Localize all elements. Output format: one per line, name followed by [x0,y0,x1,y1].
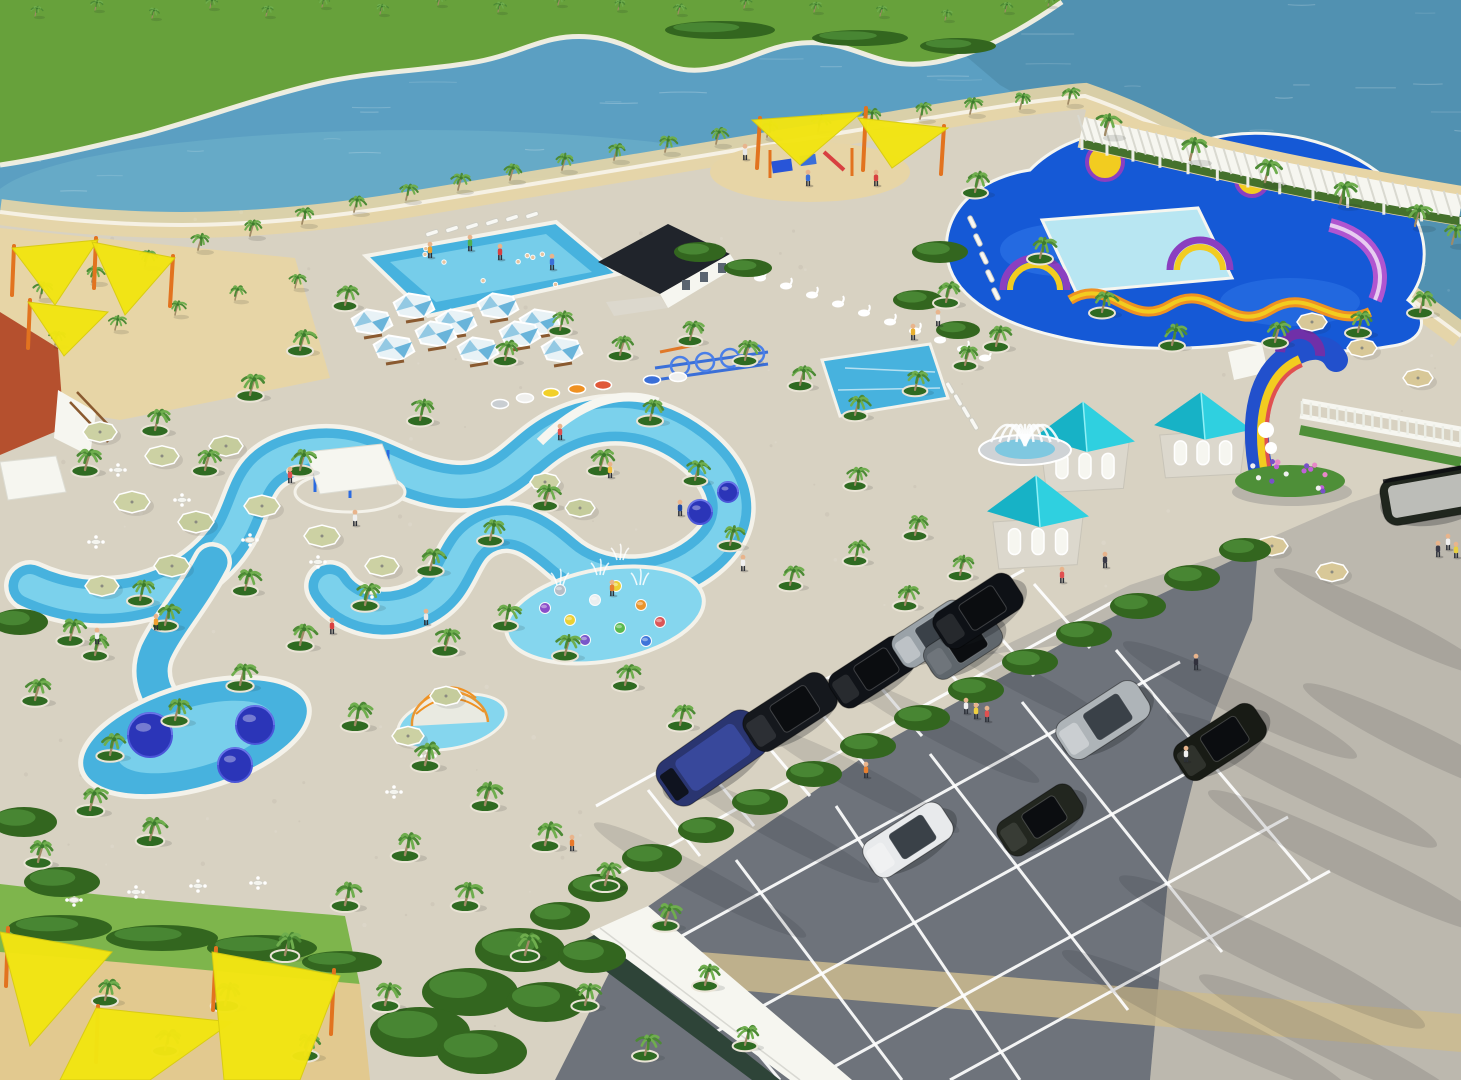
legs [1454,553,1456,558]
palm-crown [962,559,966,563]
chair [141,890,145,894]
head [743,144,748,149]
head [353,510,358,515]
palm-crown [977,175,981,179]
umbrella-pole [407,735,410,738]
west-canopy-roof [0,456,66,500]
speckle [110,845,114,849]
torso [1184,751,1188,758]
palm-crown [407,836,411,840]
umbrella-pole [99,431,102,434]
palm-crown [40,844,44,848]
umbrella-pole [445,695,448,698]
seat-top [642,638,648,642]
legs [468,246,470,251]
head [678,500,683,505]
palm-shadow [234,300,249,304]
float-dome [688,500,712,524]
hedge-light [916,243,950,255]
palm-crown [36,8,38,10]
dome-highlight [224,756,236,763]
speckle [1192,393,1194,395]
head [911,324,916,329]
head [1103,552,1108,557]
speckle [408,522,412,526]
chair [392,795,396,799]
palm-crown [347,886,351,890]
speckle [379,725,382,728]
palm-crown [1070,90,1073,93]
speckle [67,843,69,845]
palm-crown [802,369,806,373]
speckle [578,810,582,814]
hedge-light [1223,540,1254,553]
dome-highlight [136,723,151,732]
legs [471,246,473,251]
swimmer [531,255,535,259]
palm-crown [467,886,471,890]
palm-shadow [265,16,276,19]
torso [911,329,915,336]
head [498,244,503,249]
hedge [302,951,382,973]
head [974,703,979,708]
speckle [834,558,838,562]
hedge-light [114,927,181,941]
speckle [1401,410,1403,412]
head [985,706,990,711]
seat-top [556,587,562,591]
head [330,618,335,623]
swimmer [540,252,544,256]
ripple [1454,130,1461,131]
swimmer [553,282,557,286]
legs [431,253,433,258]
speckle [579,834,582,837]
palm-crown [619,2,621,4]
flower [1269,479,1274,484]
speckle [635,528,638,531]
head [1454,542,1459,547]
palm-shadow [1047,6,1058,9]
torso [743,149,747,156]
legs [1446,545,1448,550]
chair [65,898,69,902]
palm-crown [622,339,626,343]
hedge-light [790,763,824,777]
palm-shadow [294,288,309,292]
palm-crown [37,682,41,686]
speckle [476,769,478,771]
palm-crown [567,638,571,642]
palm-crown [871,111,874,114]
flower [1256,475,1261,480]
palm-crown [356,198,359,201]
hedge-light [819,31,877,40]
head [95,628,100,633]
umbrella-pole [225,445,228,448]
legs [610,591,612,596]
speckle [561,856,565,860]
legs [964,709,966,714]
legs [1187,757,1189,762]
palm-shadow [379,14,390,17]
palm-crown [562,315,566,319]
head [1436,541,1441,546]
hedge-light [939,322,965,332]
palm-crown [512,166,515,169]
legs [985,717,987,722]
table [69,897,79,902]
legs [611,473,613,478]
stepping-stone [543,389,560,398]
seat-top [566,617,572,621]
hedge-light [378,1011,438,1039]
umbrella-pole [101,585,104,588]
chair [203,884,207,888]
palm-crown [1277,325,1281,329]
chair [248,533,252,537]
palm-crown [116,318,119,321]
palm-shadow [557,5,568,8]
palm-crown [1107,117,1111,121]
speckle [1222,373,1226,377]
flower [1274,464,1279,469]
speckle [825,512,829,516]
hedge [674,242,726,262]
legs [743,155,745,160]
seat-top [581,637,587,641]
legs [570,846,572,851]
palm-shadow [1103,135,1126,142]
palm-crown [252,377,256,381]
palm-shadow [114,330,129,334]
speckle [239,210,243,214]
torso [424,614,428,621]
head [964,698,969,703]
palm-crown [1360,315,1364,319]
table [193,883,203,888]
chair [316,555,320,559]
palm-shadow [1413,226,1436,233]
hedge [622,844,682,872]
torso [498,249,502,256]
legs [608,473,610,478]
palm-crown [296,276,299,279]
chair [189,884,193,888]
legs [1197,665,1199,670]
hedge [894,705,950,731]
speckle [1104,585,1107,588]
palm-crown [447,632,451,636]
speckle [1447,289,1450,292]
chair [385,790,389,794]
hedge-light [678,244,709,255]
table [253,880,263,885]
speckle [792,230,795,233]
palm-crown [499,4,501,6]
splash-seat [565,615,576,626]
legs [356,521,358,526]
arched-window [1102,453,1114,478]
palm-shadow [944,20,955,23]
speckle [193,218,196,221]
legs [550,265,552,270]
palm-shadow [437,5,448,8]
speckle [61,460,65,464]
splash-seat [655,617,666,628]
palm-crown [857,399,861,403]
palm-crown [667,907,671,911]
palm-shadow [918,119,936,124]
chair [256,876,260,880]
speckle [519,386,522,389]
ripple [349,152,381,153]
palm-crown [1022,95,1025,98]
hedge [786,761,842,787]
torso [95,633,99,640]
palm-crown [747,344,751,348]
aerial-water-park-render [0,0,1461,1080]
torso [1454,547,1458,554]
chair [87,540,91,544]
torso [1103,557,1107,564]
legs [1060,578,1062,583]
speckle [212,630,216,634]
hedge-light [736,791,770,805]
palm-crown [507,608,511,612]
speckle [398,514,402,518]
umbrella-pole [1417,377,1420,380]
head [154,614,159,619]
splash-seat [636,600,647,611]
palm-crown [427,746,431,750]
hedge-light [1114,595,1148,609]
cloud-ornament [1258,422,1274,438]
stepping-stone [644,376,661,385]
legs [1194,665,1196,670]
palm-crown [1417,208,1421,212]
hedge [732,789,788,815]
palm-crown [607,866,611,870]
umbrella-pole [195,521,198,524]
ripple [1413,84,1443,85]
speckle [1166,509,1170,513]
legs [1184,757,1186,762]
hedge [437,1030,527,1074]
table [91,539,101,544]
torso [1194,659,1198,666]
palm-crown [881,8,883,10]
palm-crown [602,453,606,457]
legs [988,717,990,722]
scene-canvas [0,0,1461,1080]
flower [1320,488,1325,493]
palm-crown [792,569,796,573]
hedge [1002,649,1058,675]
umbrella-pole [381,565,384,568]
chair [180,493,184,497]
speckle [24,772,28,776]
hedge [948,677,1004,703]
hedge-light [898,707,932,721]
hedge [812,30,908,46]
legs [806,181,808,186]
chair [263,881,267,885]
palm-crown [1174,328,1178,332]
speckle [362,923,366,927]
swimmer [516,260,520,264]
palm-crown [381,6,383,8]
head [608,462,613,467]
speckle [774,441,776,443]
hedge-light [952,679,986,693]
chair [196,889,200,893]
speckle [272,799,277,804]
palm-crown [1422,295,1426,299]
legs [95,639,97,644]
palm-crown [857,470,861,474]
palm-shadow [677,14,688,17]
hedge-light [926,39,972,48]
clubhouse-window [700,272,708,282]
legs [1063,578,1065,583]
palm-shadow [663,152,681,157]
arched-window [1032,529,1044,555]
palm-crown [247,573,251,577]
palm-crown [707,968,711,972]
arched-window [1174,441,1186,465]
palm-crown [917,374,921,378]
speckle [494,1025,496,1027]
legs [157,625,159,630]
dome-highlight [722,487,729,491]
palm-crown [922,105,925,108]
palm-crown [1342,185,1346,189]
speckle [298,820,300,822]
palm-crown [972,100,975,103]
swimmer [424,246,428,250]
palm-shadow [813,12,824,15]
torso [550,259,554,266]
palm-crown [647,1038,651,1042]
chair [256,886,260,890]
splash-seat [641,636,652,647]
umbrella-pole [1331,571,1334,574]
legs [1103,563,1105,568]
speckle [779,252,782,255]
legs [98,639,100,644]
torso [330,623,334,630]
head [864,762,869,767]
palm-shadow [743,8,754,11]
palm-crown [492,523,496,527]
sail-post [28,300,30,348]
speckle [409,437,413,441]
hedge [1219,538,1271,562]
hedge [678,817,734,843]
palm-shadow [560,170,578,175]
hedge [106,925,218,951]
hedge [920,38,996,54]
swimmer [442,260,446,264]
chair [249,881,253,885]
palm-crown [200,236,203,239]
torso [974,708,978,715]
palm-crown [1267,163,1271,167]
palm-crown [652,403,656,407]
legs [154,625,156,630]
head [428,242,433,247]
head [936,310,941,315]
torso [964,703,968,710]
palm-crown [432,552,436,556]
speckle [1101,541,1106,546]
ripple [525,149,544,150]
head [806,170,811,175]
stepping-stone [595,381,612,390]
hedge-light [844,735,878,749]
palm-crown [92,791,96,795]
splash-seat [590,595,601,606]
chair [134,895,138,899]
swimmer [423,252,427,256]
hedge-light [16,917,78,931]
chair [248,543,252,547]
palm-shadow [404,200,422,205]
hedge [936,321,980,339]
umbrella-pole [321,535,324,538]
palm-shadow [714,144,732,149]
hedge [24,867,100,897]
legs [573,846,575,851]
palm-crown [679,6,681,8]
palm-crown [252,222,255,225]
flower [1275,460,1280,465]
palm-crown [527,936,531,940]
legs [746,155,748,160]
palm-crown [967,349,971,353]
palm-crown [176,303,179,306]
hedge-light [673,22,739,32]
speckle [913,485,916,488]
seat-top [656,619,662,623]
chair [180,503,184,507]
palm-crown [367,587,371,591]
palm-crown [547,488,551,492]
torso [874,175,878,182]
clubhouse-window [682,280,690,290]
palm-crown [948,285,952,289]
speckle [768,369,770,371]
splash-seat [540,603,551,614]
palm-crown [907,589,911,593]
chair [134,885,138,889]
torso [610,585,614,592]
chair [399,790,403,794]
torso [741,560,745,567]
palm-crown [1192,141,1196,145]
hedge [530,902,590,930]
speckle [1430,354,1433,357]
torso [154,619,158,626]
palm-shadow [321,7,332,10]
torso [864,767,868,774]
legs [427,620,429,625]
palm-crown [242,667,246,671]
hedge [840,733,896,759]
table [313,559,323,564]
